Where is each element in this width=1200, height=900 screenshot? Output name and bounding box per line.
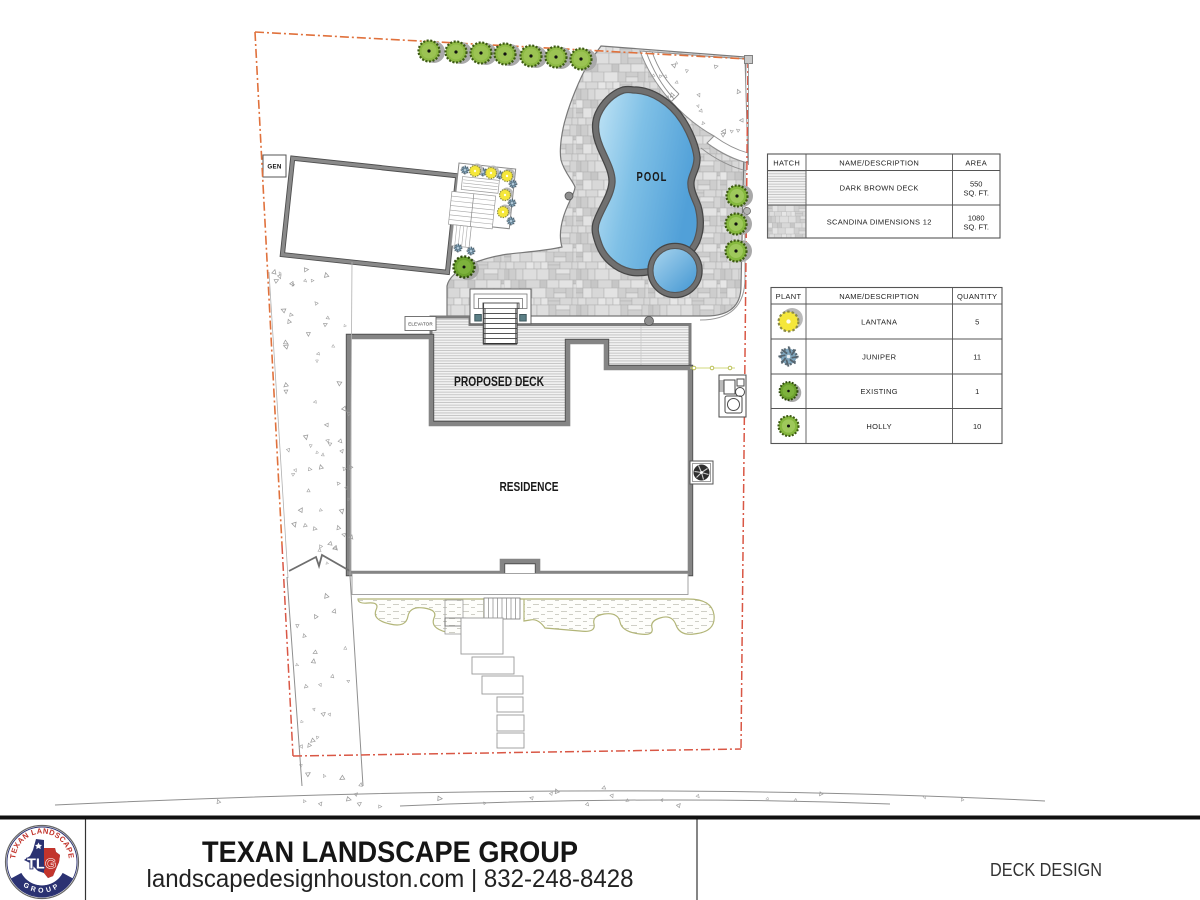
svg-text:JUNIPER: JUNIPER [862,353,896,362]
svg-text:10: 10 [973,422,981,431]
svg-text:G: G [45,857,56,873]
svg-text:landscapedesignhouston.com | 8: landscapedesignhouston.com | 832-248-842… [147,865,634,893]
svg-text:NAME/DESCRIPTION: NAME/DESCRIPTION [839,159,919,168]
svg-text:DARK BROWN DECK: DARK BROWN DECK [840,184,919,193]
svg-text:DECK DESIGN: DECK DESIGN [990,860,1102,880]
svg-text:SCANDINA DIMENSIONS 12: SCANDINA DIMENSIONS 12 [827,218,932,227]
svg-text:POOL: POOL [637,169,668,184]
svg-text:PLANT: PLANT [776,292,802,301]
svg-text:ELEVATOR: ELEVATOR [408,322,433,327]
svg-text:11: 11 [973,353,981,362]
svg-text:HOLLY: HOLLY [866,422,892,431]
svg-text:SQ. FT.: SQ. FT. [963,189,988,198]
svg-text:GEN: GEN [267,164,282,171]
svg-text:550: 550 [970,180,983,189]
svg-text:1: 1 [975,387,979,396]
svg-text:1080: 1080 [968,214,985,223]
svg-text:NAME/DESCRIPTION: NAME/DESCRIPTION [839,292,919,301]
svg-text:AREA: AREA [965,159,987,168]
svg-text:RESIDENCE: RESIDENCE [500,480,559,494]
svg-text:TL: TL [27,857,45,873]
svg-text:LANTANA: LANTANA [861,318,897,327]
svg-text:PROPOSED DECK: PROPOSED DECK [454,374,544,389]
svg-text:HATCH: HATCH [773,159,800,168]
svg-text:QUANTITY: QUANTITY [957,292,997,301]
svg-text:EXISTING: EXISTING [860,387,897,396]
svg-text:5: 5 [975,318,979,327]
svg-text:SQ. FT.: SQ. FT. [963,223,988,232]
